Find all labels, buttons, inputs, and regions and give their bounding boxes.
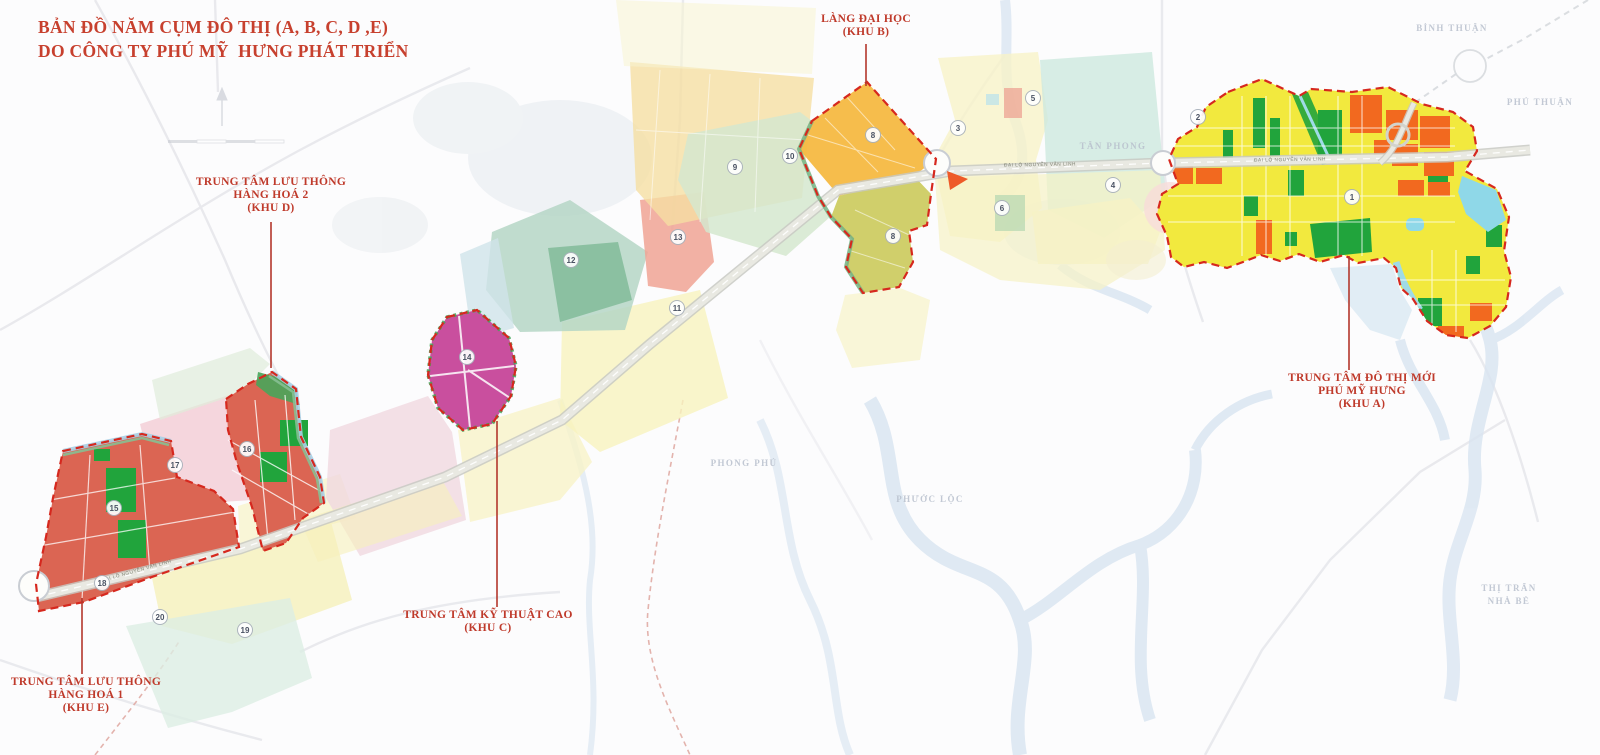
zone-marker-number: 16: [243, 445, 252, 454]
zone-marker: 16: [240, 442, 255, 457]
zone-marker: 9: [728, 160, 743, 175]
zone-marker-number: 2: [1196, 113, 1201, 122]
zone-marker-number: 15: [110, 504, 119, 513]
zone-marker-number: 14: [463, 353, 472, 362]
zone-marker: 8: [866, 128, 881, 143]
district-name: PHONG PHÚ: [711, 458, 778, 468]
zone-marker: 12: [564, 253, 579, 268]
zone-marker-number: 1: [1350, 193, 1355, 202]
zone-marker: 17: [168, 458, 183, 473]
planning-map-page: ĐẠI LỘ NGUYỄN VĂN LINHĐẠI LỘ NGUYỄN VĂN …: [0, 0, 1600, 755]
zone-marker-number: 20: [156, 613, 165, 622]
zone-marker-number: 17: [171, 461, 180, 470]
zone-khu-a[interactable]: [1157, 79, 1511, 340]
zone-label-line: TRUNG TÂM LƯU THÔNG: [196, 176, 346, 189]
north-arrow-icon: [217, 88, 227, 126]
zone-marker-number: 8: [871, 131, 876, 140]
zone-label-line: LÀNG ĐẠI HỌC: [821, 13, 911, 26]
zone-marker: 14: [460, 350, 475, 365]
zone-marker: 6: [995, 201, 1010, 216]
zone-marker: 4: [1106, 178, 1121, 193]
zone-label-line: PHÚ MỸ HƯNG: [1288, 385, 1436, 398]
zone-marker: 5: [1026, 91, 1041, 106]
zone-marker: 1: [1345, 190, 1360, 205]
zone-marker: 11: [670, 301, 685, 316]
zone-label-khu-a: TRUNG TÂM ĐÔ THỊ MỚIPHÚ MỸ HƯNG(KHU A): [1288, 372, 1436, 411]
zone-label-line: HÀNG HOÁ 1: [11, 689, 161, 702]
zone-marker-number: 6: [1000, 204, 1005, 213]
zone-marker: 2: [1191, 110, 1206, 125]
scale-bar: [168, 140, 284, 143]
zone-marker-number: 18: [98, 579, 107, 588]
pale-zones: [126, 0, 1196, 728]
zone-marker: 18: [95, 576, 110, 591]
zone-label-khu-d: TRUNG TÂM LƯU THÔNGHÀNG HOÁ 2(KHU D): [196, 176, 346, 215]
zone-marker: 10: [783, 149, 798, 164]
zone-label-line: (KHU B): [821, 26, 911, 39]
zone-label-line: (KHU D): [196, 202, 346, 215]
zone-marker: 13: [671, 230, 686, 245]
zone-marker-number: 3: [956, 124, 961, 133]
zone-label-khu-b: LÀNG ĐẠI HỌC(KHU B): [821, 13, 911, 39]
zone-marker-number: 9: [733, 163, 738, 172]
roundabout-khu-b: [924, 150, 950, 176]
district-name: TÂN PHONG: [1080, 141, 1147, 151]
map-title-line1: BẢN ĐỒ NĂM CỤM ĐÔ THỊ (A, B, C, D ,E): [38, 17, 388, 37]
zone-label-line: TRUNG TÂM LƯU THÔNG: [11, 676, 161, 689]
district-name: PHƯỚC LỘC: [896, 494, 964, 504]
district-name: THỊ TRẤN: [1481, 583, 1536, 593]
zone-marker: 15: [107, 501, 122, 516]
zone-marker-number: 12: [567, 256, 576, 265]
zone-label-khu-e: TRUNG TÂM LƯU THÔNGHÀNG HOÁ 1(KHU E): [11, 676, 161, 715]
planned-interchange-circle: [1454, 50, 1486, 82]
zone-label-khu-c: TRUNG TÂM KỸ THUẬT CAO(KHU C): [403, 609, 573, 635]
zone-marker-number: 5: [1031, 94, 1036, 103]
zone-marker-number: 10: [786, 152, 795, 161]
zone-marker: 3: [951, 121, 966, 136]
zone-label-line: (KHU C): [403, 622, 573, 635]
district-name: NHÀ BÈ: [1488, 596, 1531, 606]
zone-marker-number: 13: [674, 233, 683, 242]
zone-marker: 19: [238, 623, 253, 638]
zone-label-line: (KHU A): [1288, 398, 1436, 411]
map-title: BẢN ĐỒ NĂM CỤM ĐÔ THỊ (A, B, C, D ,E) DO…: [38, 16, 409, 63]
district-name: PHÚ THUẬN: [1507, 97, 1573, 107]
zone-marker-number: 8: [891, 232, 896, 241]
zone-marker: 8: [886, 229, 901, 244]
zone-label-line: TRUNG TÂM KỸ THUẬT CAO: [403, 609, 573, 622]
zone-label-line: TRUNG TÂM ĐÔ THỊ MỚI: [1288, 372, 1436, 385]
zone-marker-number: 4: [1111, 181, 1116, 190]
zone-marker: 20: [153, 610, 168, 625]
zone-label-line: (KHU E): [11, 702, 161, 715]
zone-marker-number: 11: [673, 304, 682, 313]
zone-marker-number: 19: [241, 626, 250, 635]
roundabout-west: [19, 571, 49, 601]
zone-label-line: HÀNG HOÁ 2: [196, 189, 346, 202]
dashed-planned-road: [1416, 0, 1588, 102]
district-name: BÌNH THUẬN: [1416, 23, 1488, 33]
map-title-line2: DO CÔNG TY PHÚ MỸ HƯNG PHÁT TRIỂN: [38, 41, 409, 61]
